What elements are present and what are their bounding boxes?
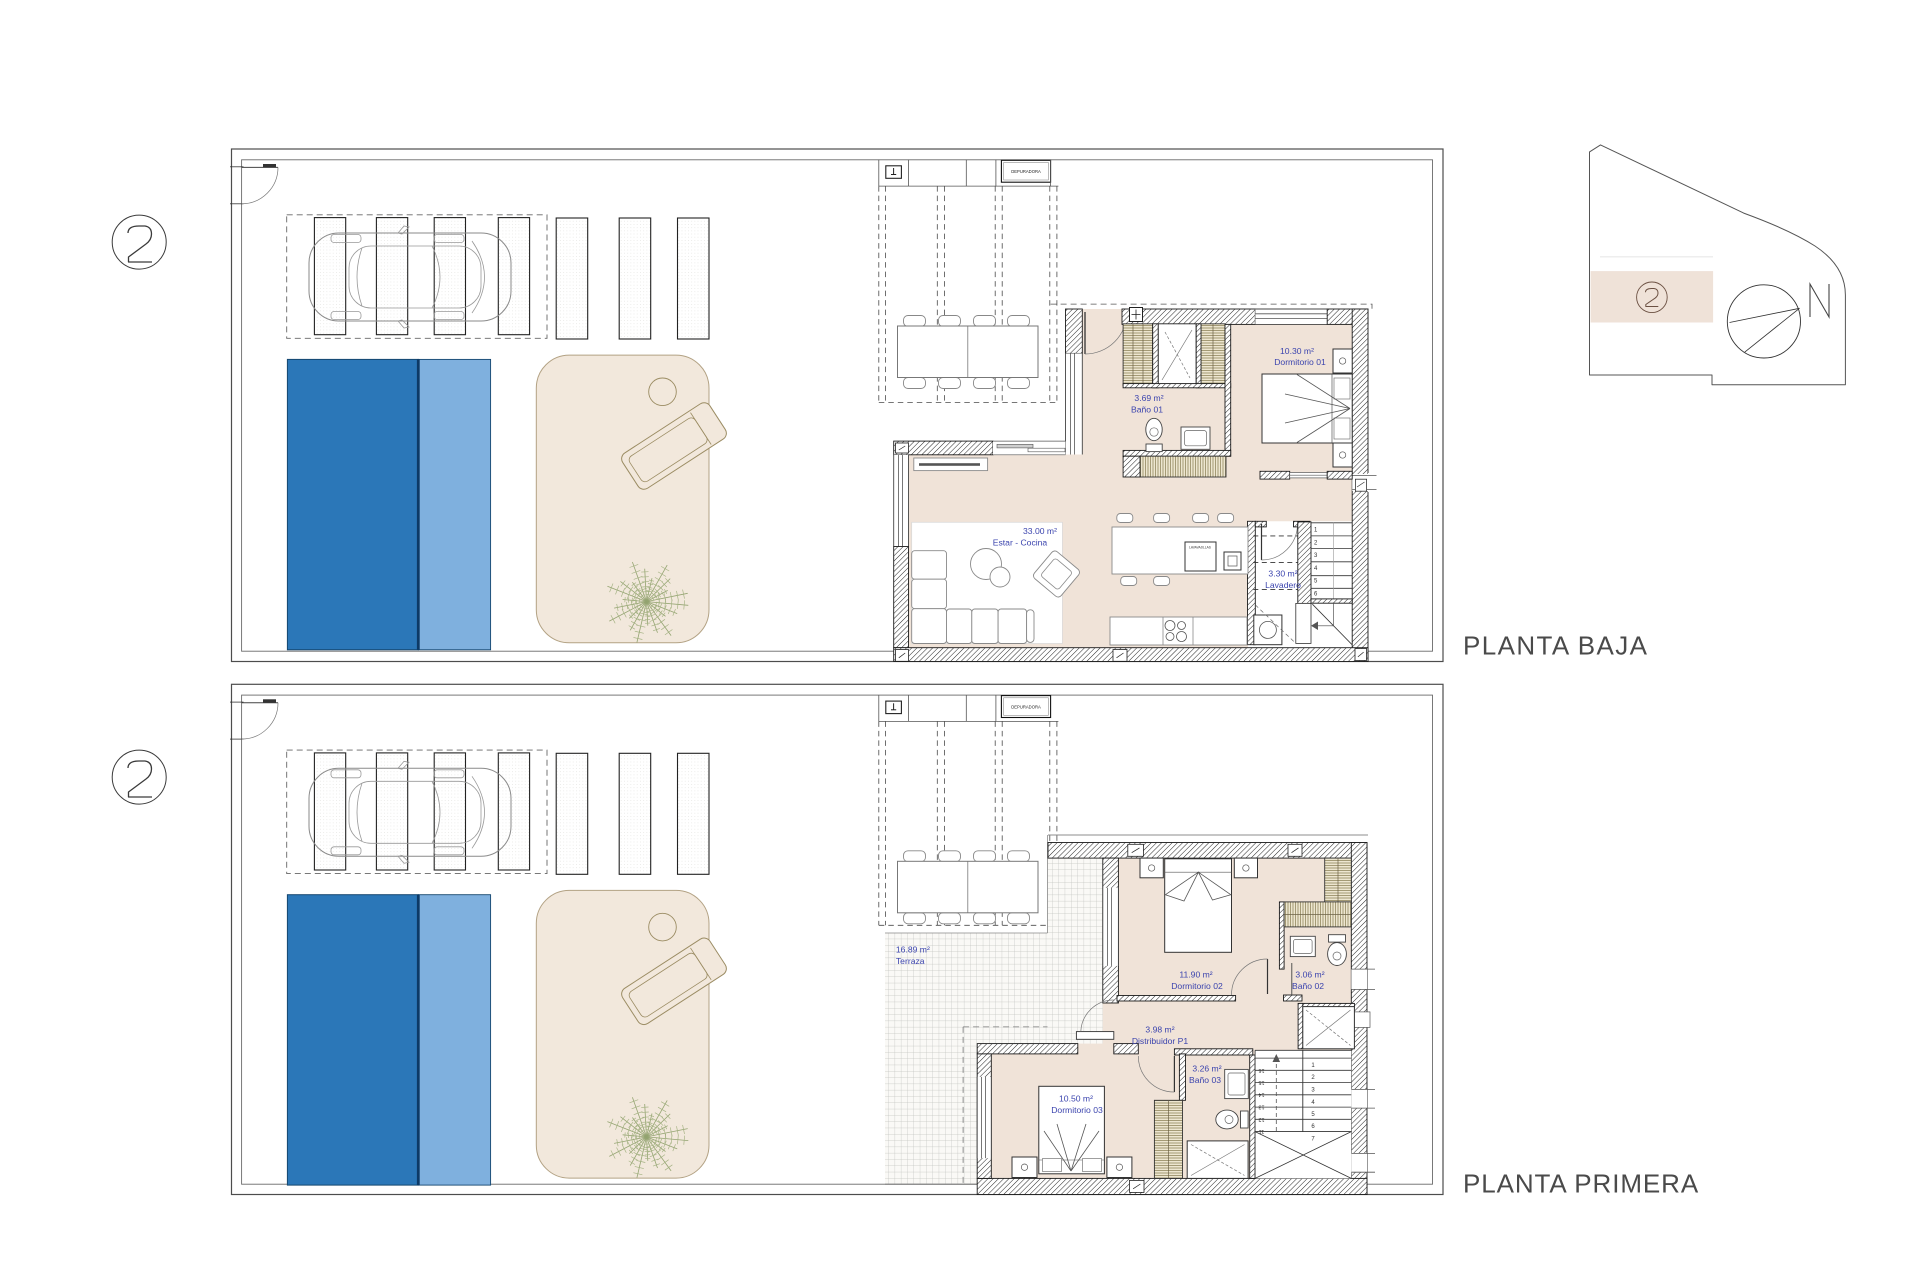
svg-text:3: 3	[1314, 553, 1318, 559]
svg-text:Distribuidor P1: Distribuidor P1	[1132, 1036, 1189, 1046]
svg-text:11.90 m²: 11.90 m²	[1179, 970, 1212, 980]
svg-text:Estar - Cocina: Estar - Cocina	[993, 538, 1048, 548]
svg-text:3.30 m²: 3.30 m²	[1268, 569, 1297, 579]
svg-text:4: 4	[1314, 566, 1318, 572]
svg-text:3.26 m²: 3.26 m²	[1192, 1064, 1221, 1074]
svg-text:DEPURADORA: DEPURADORA	[1011, 169, 1041, 174]
svg-text:3.69 m²: 3.69 m²	[1134, 393, 1163, 403]
svg-text:Lavadero: Lavadero	[1265, 580, 1301, 590]
svg-text:Dormitorio 01: Dormitorio 01	[1274, 357, 1326, 367]
svg-text:Baño 02: Baño 02	[1292, 981, 1324, 991]
svg-text:14: 14	[1258, 1091, 1264, 1097]
svg-text:3.98 m²: 3.98 m²	[1145, 1025, 1174, 1035]
svg-text:11: 11	[1259, 1128, 1265, 1134]
svg-text:12: 12	[1258, 1116, 1264, 1122]
svg-text:5: 5	[1314, 579, 1318, 585]
svg-text:15: 15	[1258, 1079, 1264, 1085]
svg-text:PLANTA BAJA: PLANTA BAJA	[1463, 631, 1648, 661]
svg-text:Dormitorio 02: Dormitorio 02	[1171, 981, 1223, 991]
svg-text:13: 13	[1258, 1104, 1264, 1110]
svg-text:10.50 m²: 10.50 m²	[1059, 1094, 1093, 1104]
svg-text:Dormitorio 03: Dormitorio 03	[1051, 1105, 1103, 1115]
svg-text:PLANTA PRIMERA: PLANTA PRIMERA	[1463, 1169, 1699, 1199]
svg-text:2: 2	[1314, 540, 1318, 546]
svg-text:16.89 m²: 16.89 m²	[896, 945, 930, 955]
svg-text:10.30 m²: 10.30 m²	[1280, 346, 1314, 356]
svg-text:LAVAVAJILLAS: LAVAVAJILLAS	[1189, 546, 1211, 550]
svg-text:Terraza: Terraza	[896, 956, 925, 966]
svg-text:16: 16	[1258, 1067, 1264, 1073]
svg-text:Baño 03: Baño 03	[1189, 1075, 1221, 1085]
svg-text:1: 1	[1314, 528, 1318, 534]
svg-text:6: 6	[1314, 592, 1318, 598]
svg-text:33.00 m²: 33.00 m²	[1023, 526, 1057, 536]
svg-text:3.06 m²: 3.06 m²	[1295, 970, 1324, 980]
svg-text:Baño 01: Baño 01	[1131, 405, 1163, 415]
svg-text:DEPURADORA: DEPURADORA	[1011, 705, 1041, 710]
